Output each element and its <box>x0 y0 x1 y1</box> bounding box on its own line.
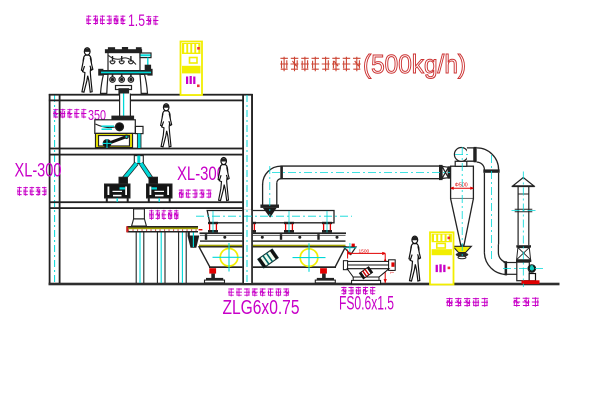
svg-text:XL-300: XL-300 <box>177 164 225 185</box>
svg-text:FS0.6x1.5: FS0.6x1.5 <box>339 294 394 315</box>
svg-text:1.5: 1.5 <box>128 11 145 30</box>
svg-text:(500kg/h): (500kg/h) <box>363 49 466 79</box>
svg-text:1500: 1500 <box>359 248 370 254</box>
svg-text:ZLG6x0.75: ZLG6x0.75 <box>223 297 300 319</box>
svg-text:Φ500: Φ500 <box>455 183 468 189</box>
svg-text:XL-300: XL-300 <box>15 161 62 182</box>
